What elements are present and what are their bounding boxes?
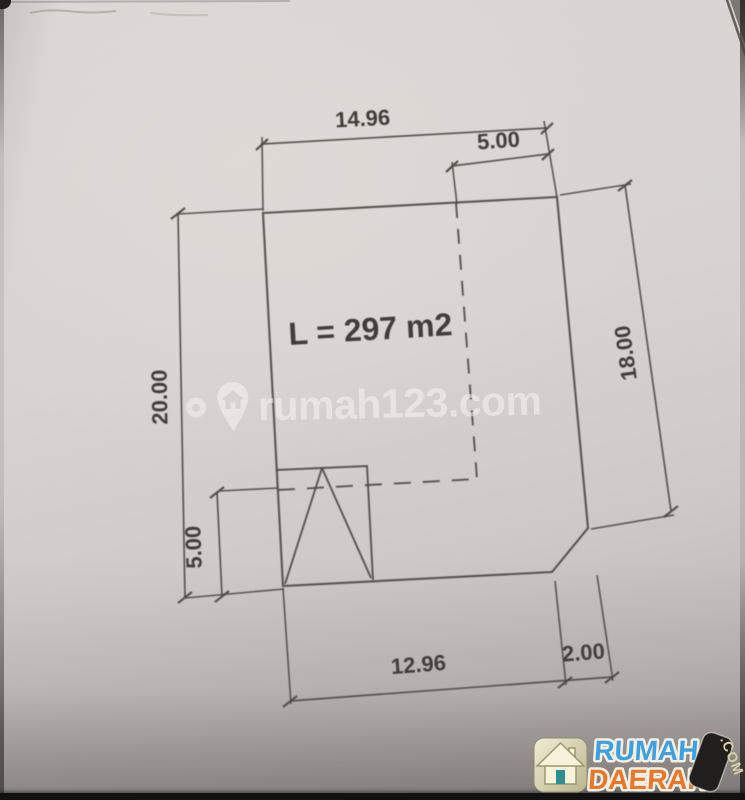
brand-logo: RUMAH DAERAH .COM [528, 726, 745, 800]
house-badge [534, 738, 587, 792]
brand-line1: RUMAH [593, 735, 699, 766]
photo-crease-layer [0, 0, 745, 800]
photographed-site-plan: 14.96 5.00 20.00 18.00 5.00 12.96 2.00 L… [0, 0, 745, 800]
brand-logo-svg: RUMAH DAERAH .COM [528, 726, 745, 800]
